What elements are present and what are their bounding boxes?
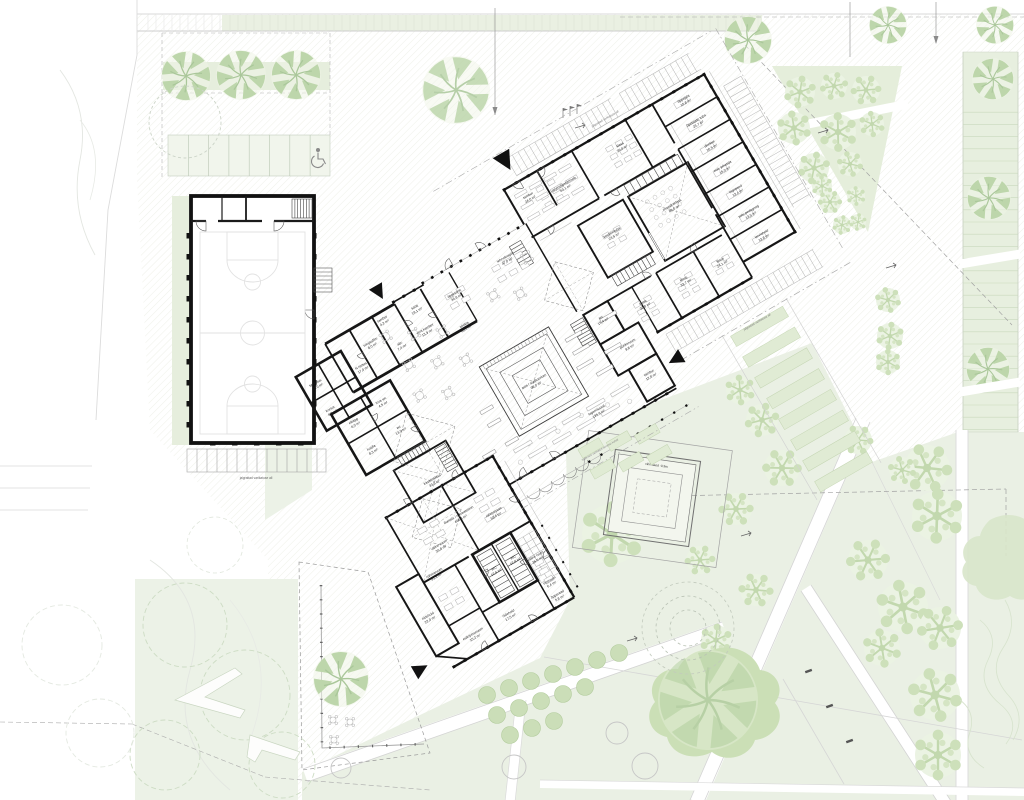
svg-text:jalgrattad varikatuse all: jalgrattad varikatuse all <box>239 476 273 480</box>
